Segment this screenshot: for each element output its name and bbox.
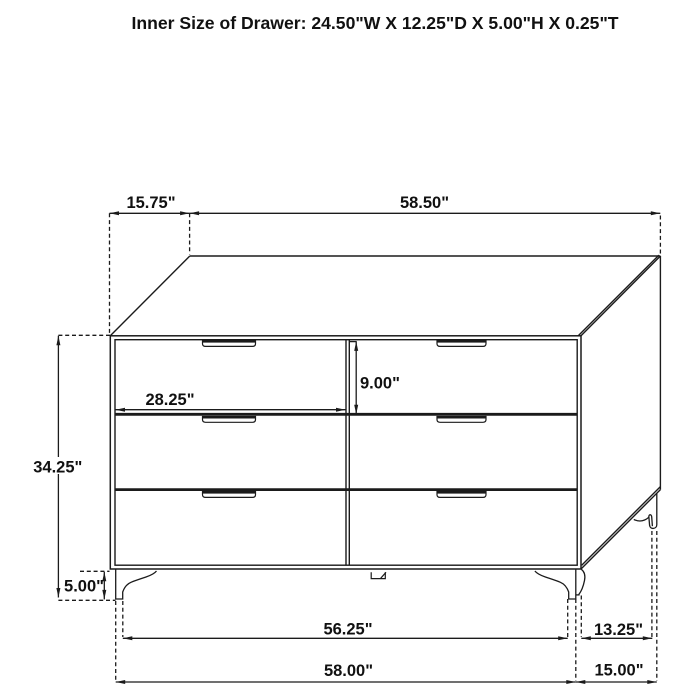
svg-text:Inner Size of Drawer: 24.50"W: Inner Size of Drawer: 24.50"W X 12.25"D … — [131, 13, 618, 33]
svg-text:34.25": 34.25" — [33, 459, 82, 477]
svg-text:56.25": 56.25" — [323, 620, 372, 638]
svg-text:58.00": 58.00" — [324, 662, 373, 680]
svg-text:9.00": 9.00" — [360, 375, 400, 393]
svg-text:58.50": 58.50" — [400, 194, 449, 212]
svg-text:15.00": 15.00" — [594, 661, 643, 679]
svg-text:28.25": 28.25" — [145, 391, 194, 409]
svg-text:15.75": 15.75" — [126, 194, 175, 212]
svg-text:5.00": 5.00" — [64, 577, 104, 595]
svg-text:13.25": 13.25" — [594, 621, 643, 639]
